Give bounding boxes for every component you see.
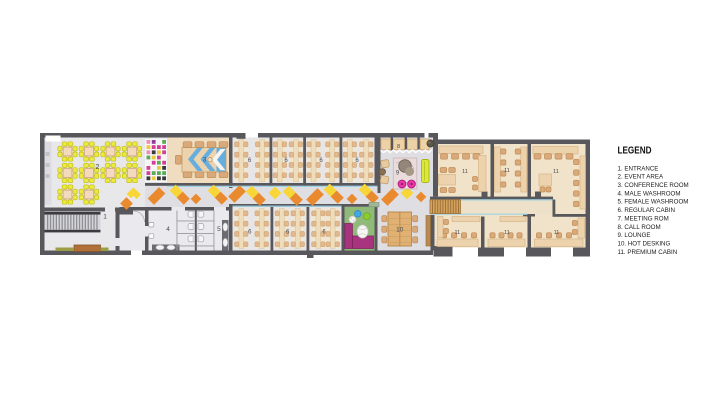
svg-text:9. LOUNGE: 9. LOUNGE (618, 232, 651, 239)
svg-text:7. MEETING ROM: 7. MEETING ROM (618, 215, 669, 222)
svg-text:5: 5 (217, 226, 221, 233)
svg-text:1: 1 (103, 214, 107, 221)
svg-text:2. EVENT AREA: 2. EVENT AREA (618, 174, 664, 181)
svg-text:2: 2 (95, 164, 99, 171)
svg-text:11. PREMIUM CABIN: 11. PREMIUM CABIN (618, 249, 678, 256)
svg-text:11: 11 (553, 169, 559, 175)
svg-text:10: 10 (396, 227, 404, 234)
svg-text:11: 11 (504, 230, 510, 236)
svg-text:5. FEMALE WASHROOM: 5. FEMALE WASHROOM (618, 199, 689, 206)
svg-text:3. CONFERENCE ROOM: 3. CONFERENCE ROOM (618, 182, 689, 189)
svg-text:11: 11 (455, 230, 461, 236)
svg-text:11: 11 (504, 168, 510, 174)
svg-text:6. REGULAR CABIN: 6. REGULAR CABIN (618, 207, 675, 214)
svg-text:3: 3 (203, 157, 207, 164)
svg-text:8. CALL ROOM: 8. CALL ROOM (618, 224, 661, 231)
svg-text:1. ENTRANCE: 1. ENTRANCE (618, 165, 659, 172)
svg-text:10. HOT DESKING: 10. HOT DESKING (618, 240, 671, 247)
svg-text:4: 4 (166, 226, 170, 233)
svg-text:8: 8 (397, 144, 400, 150)
svg-text:11: 11 (462, 169, 468, 175)
svg-text:11: 11 (554, 230, 560, 236)
svg-text:4. MALE WASHROOM: 4. MALE WASHROOM (618, 190, 681, 197)
svg-text:LEGEND: LEGEND (618, 145, 652, 156)
